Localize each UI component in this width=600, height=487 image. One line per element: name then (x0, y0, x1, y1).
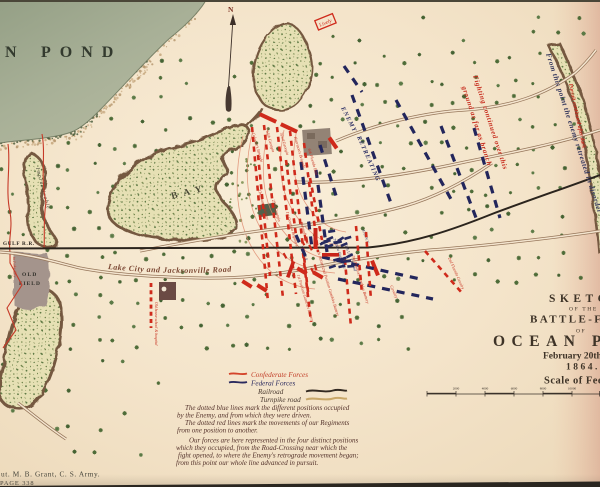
svg-text:BATTLE-FIELD: BATTLE-FIELD (530, 314, 600, 326)
svg-text:4000: 4000 (482, 387, 489, 391)
svg-text:Confederate Forces: Confederate Forces (251, 371, 308, 379)
svg-text:POND: POND (41, 44, 122, 61)
svg-text:to Lake City: to Lake City (12, 257, 18, 278)
svg-text:6000: 6000 (511, 387, 518, 391)
svg-text:8000: 8000 (540, 387, 547, 391)
svg-text:N: N (5, 44, 17, 61)
svg-text:OCEAN POND: OCEAN POND (493, 333, 600, 350)
svg-text:OF THE: OF THE (569, 307, 598, 313)
svg-text:FIELD: FIELD (19, 281, 41, 287)
svg-text:Old house school & hospital: Old house school & hospital (154, 302, 158, 345)
svg-text:SKETCH: SKETCH (549, 293, 600, 305)
svg-text:Scale of Feet: Scale of Feet (544, 376, 600, 387)
svg-text:February 20th: February 20th (543, 352, 600, 362)
svg-text:N: N (228, 5, 234, 14)
svg-text:Railroad: Railroad (257, 388, 284, 396)
svg-text:10000: 10000 (568, 387, 577, 391)
svg-text:1864.: 1864. (566, 363, 600, 373)
svg-text:2000: 2000 (453, 387, 460, 391)
svg-text:OLD: OLD (22, 272, 38, 278)
svg-text:from this point our whole line: from this point our whole line advanced … (176, 459, 319, 467)
svg-text:Federal Forces: Federal Forces (250, 380, 295, 388)
svg-text:from one position to another.: from one position to another. (177, 427, 258, 435)
svg-text:Turnpike road: Turnpike road (260, 396, 301, 404)
svg-text:GULF R.R.: GULF R.R. (3, 241, 35, 247)
